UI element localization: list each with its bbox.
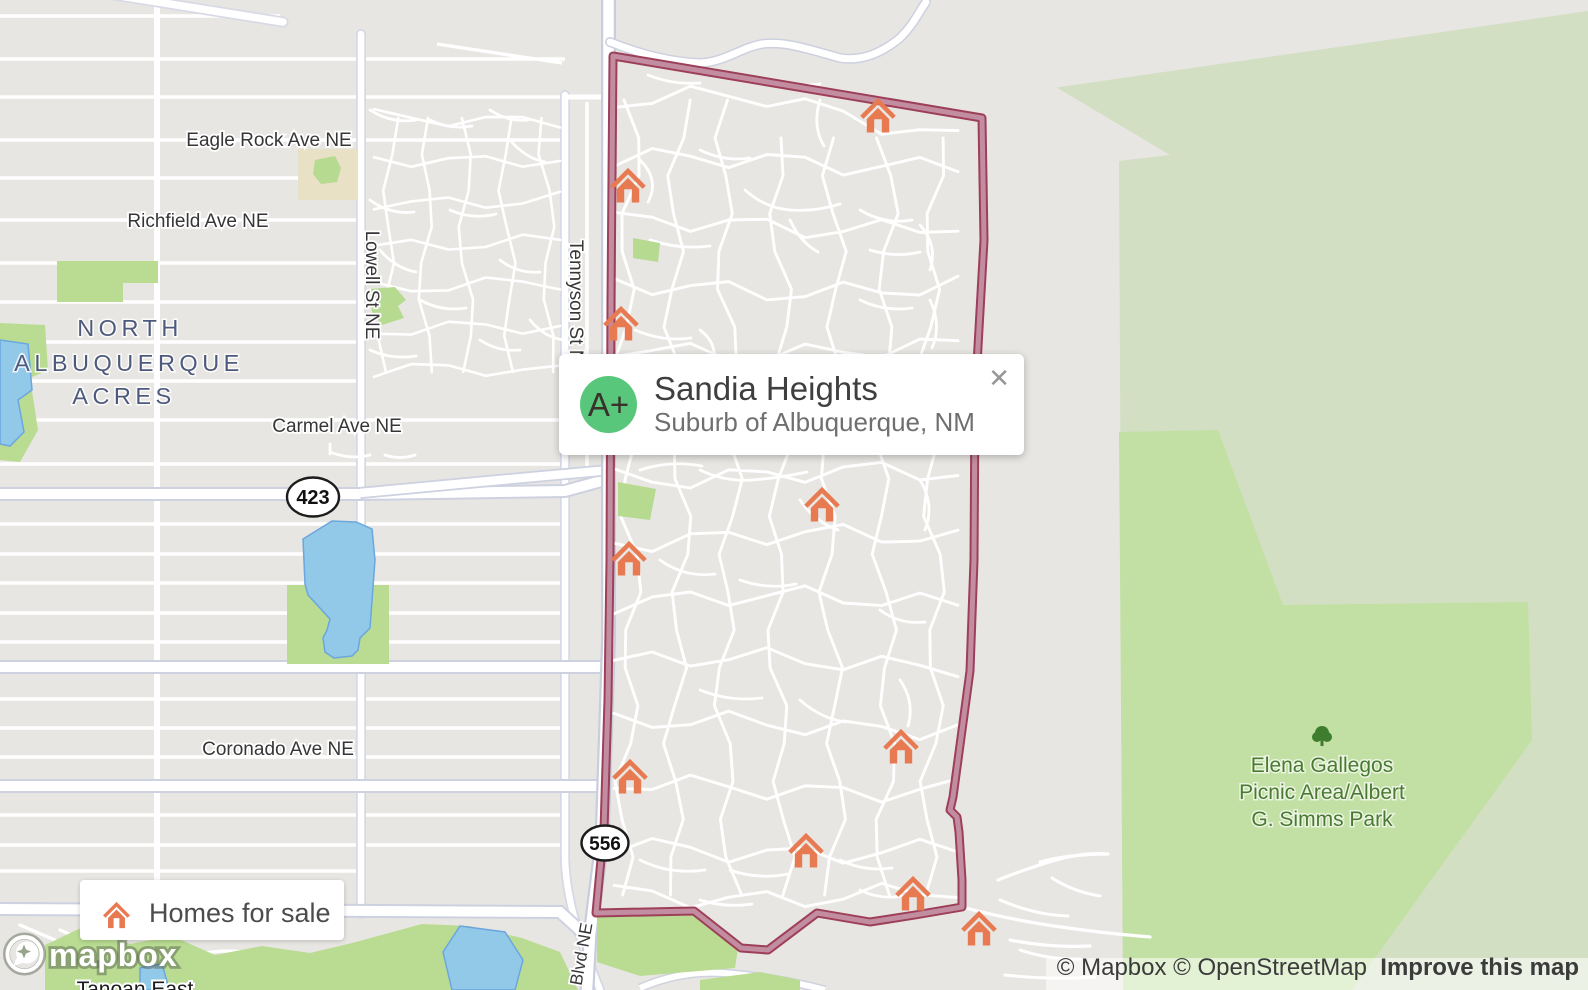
svg-text:mapbox: mapbox — [49, 937, 178, 973]
svg-text:556: 556 — [589, 834, 621, 855]
svg-text:ALBUQUERQUE: ALBUQUERQUE — [14, 350, 244, 376]
svg-text:Richfield Ave NE: Richfield Ave NE — [127, 211, 268, 232]
svg-text:Lowell St NE: Lowell St NE — [361, 231, 382, 340]
svg-text:423: 423 — [296, 487, 329, 509]
svg-text:G. Simms Park: G. Simms Park — [1251, 808, 1393, 831]
svg-text:NORTH: NORTH — [77, 315, 183, 341]
svg-text:Coronado Ave NE: Coronado Ave NE — [202, 739, 354, 760]
svg-text:Tanoan East: Tanoan East — [77, 978, 194, 990]
svg-text:Carmel Ave NE: Carmel Ave NE — [272, 416, 402, 437]
svg-text:Elena Gallegos: Elena Gallegos — [1251, 754, 1393, 777]
svg-text:ACRES: ACRES — [72, 383, 175, 409]
svg-text:Picnic Area/Albert: Picnic Area/Albert — [1239, 781, 1405, 804]
svg-text:Eagle Rock Ave NE: Eagle Rock Ave NE — [186, 130, 351, 151]
